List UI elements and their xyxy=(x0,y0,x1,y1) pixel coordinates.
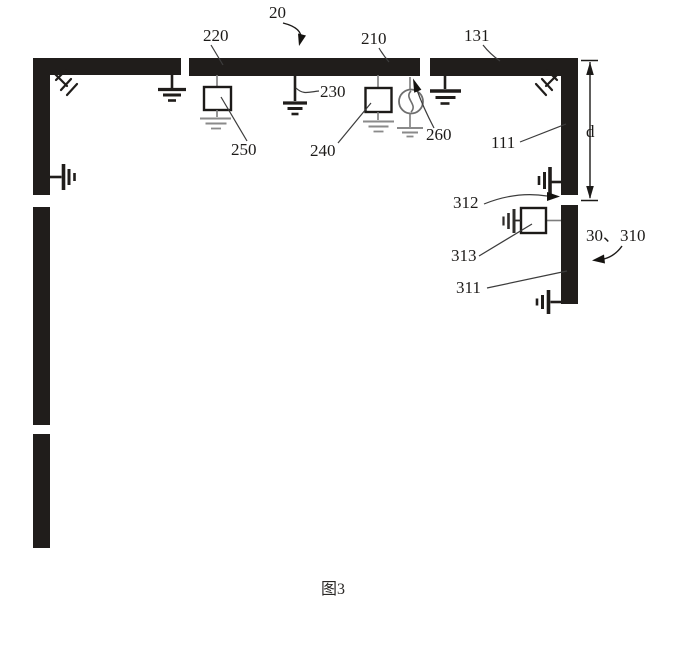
ground-symbol-230-icon xyxy=(283,76,307,114)
parasitic-strip-bar xyxy=(189,58,420,76)
arrowhead-20-icon xyxy=(298,34,306,47)
arrowhead-260-icon xyxy=(413,79,421,93)
ground-symbol-left-bar-icon xyxy=(158,75,186,101)
label-220: 220 xyxy=(203,27,229,44)
leader-230 xyxy=(296,88,319,93)
ground-symbol-311-side-icon xyxy=(537,290,561,314)
ground-symbol-left-side-icon xyxy=(50,164,75,190)
label-311: 311 xyxy=(456,279,481,296)
label-20: 20 xyxy=(269,4,286,21)
label-111: 111 xyxy=(491,134,515,151)
left-vertical-bar-1 xyxy=(33,58,50,195)
left-top-horizontal-bar xyxy=(33,58,181,75)
source-260 xyxy=(397,77,423,137)
arrow-20 xyxy=(283,23,306,46)
ground-symbol-131-icon xyxy=(430,76,461,104)
left-vertical-bar-3 xyxy=(33,434,50,548)
ground-symbol-111-side-icon xyxy=(539,167,561,194)
label-313: 313 xyxy=(451,247,477,264)
arrowhead-312-icon xyxy=(547,192,560,201)
label-250: 250 xyxy=(231,141,257,158)
dimension-arrow-up-icon xyxy=(586,62,594,75)
arrowhead-30-310-icon xyxy=(592,255,605,264)
leader-lines xyxy=(211,45,567,288)
ground-symbol-260-icon xyxy=(397,128,423,137)
label-30-310: 30、310 xyxy=(586,227,646,244)
ground-symbol-250-icon xyxy=(200,119,231,129)
leader-312 xyxy=(484,195,547,204)
ground-symbol-240-icon xyxy=(363,122,394,132)
component-313-box xyxy=(521,208,546,233)
label-312: 312 xyxy=(453,194,479,211)
label-230: 230 xyxy=(320,83,346,100)
label-131: 131 xyxy=(464,27,490,44)
component-240-box xyxy=(366,88,392,112)
patent-figure-canvas: 20 220 210 131 230 250 240 260 111 d 312… xyxy=(0,0,677,651)
label-260: 260 xyxy=(426,126,452,143)
right-vertical-bar-111 xyxy=(561,58,578,195)
label-240: 240 xyxy=(310,142,336,159)
leader-240 xyxy=(338,103,371,143)
ground-symbol-313-icon xyxy=(504,209,522,233)
arrow-30-310 xyxy=(592,246,622,264)
ground-plane-left-strips xyxy=(33,58,181,548)
component-250 xyxy=(200,75,231,129)
leader-313 xyxy=(479,224,532,256)
leader-111 xyxy=(520,124,566,142)
component-313 xyxy=(504,208,562,233)
label-210: 210 xyxy=(361,30,387,47)
driven-strip-bar-310 xyxy=(561,205,578,304)
label-d: d xyxy=(586,123,595,140)
right-top-horizontal-bar xyxy=(430,58,578,76)
dimension-arrow-down-icon xyxy=(586,186,594,199)
left-vertical-bar-2 xyxy=(33,207,50,425)
figure-caption: 图3 xyxy=(321,582,345,598)
component-240 xyxy=(363,75,394,132)
leader-311 xyxy=(487,271,567,288)
